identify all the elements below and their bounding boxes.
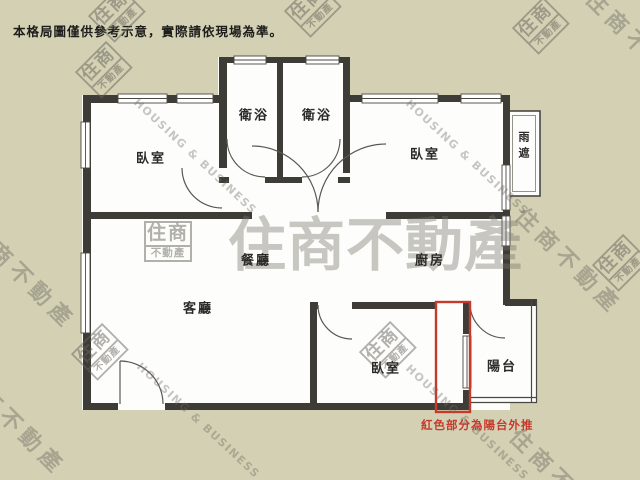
watermark-logo-sub: 不動產 (144, 245, 192, 263)
room-label-kitchen: 廚房 (415, 250, 445, 269)
floor-plan-page: 住商不動產 HOUSING & BUSINESS HOUSING & BUSIN… (0, 0, 640, 480)
room-label-bedroom-top-right: 臥室 (410, 144, 440, 163)
room-label-rain-shelter: 雨遮 (515, 131, 531, 163)
room-label-bedroom-bottom: 臥室 (371, 358, 401, 377)
watermark-logo: 住商 不動產 (144, 221, 192, 262)
room-label-living: 客廳 (183, 298, 213, 317)
room-label-bath-left: 衛浴 (239, 105, 269, 124)
room-label-bath-right: 衛浴 (302, 105, 332, 124)
disclaimer-text: 本格局圖僅供參考示意，實際請依現場為準。 (13, 21, 283, 40)
red-annotation-text: 紅色部分為陽台外推 (421, 417, 534, 433)
room-label-dining: 餐廳 (241, 250, 271, 269)
room-label-balcony: 陽台 (487, 356, 517, 375)
watermark-brand-large: 住商不動產 (228, 216, 523, 274)
room-label-bedroom-top-left: 臥室 (136, 148, 166, 167)
watermark-logo-brand: 住商 (144, 221, 192, 245)
